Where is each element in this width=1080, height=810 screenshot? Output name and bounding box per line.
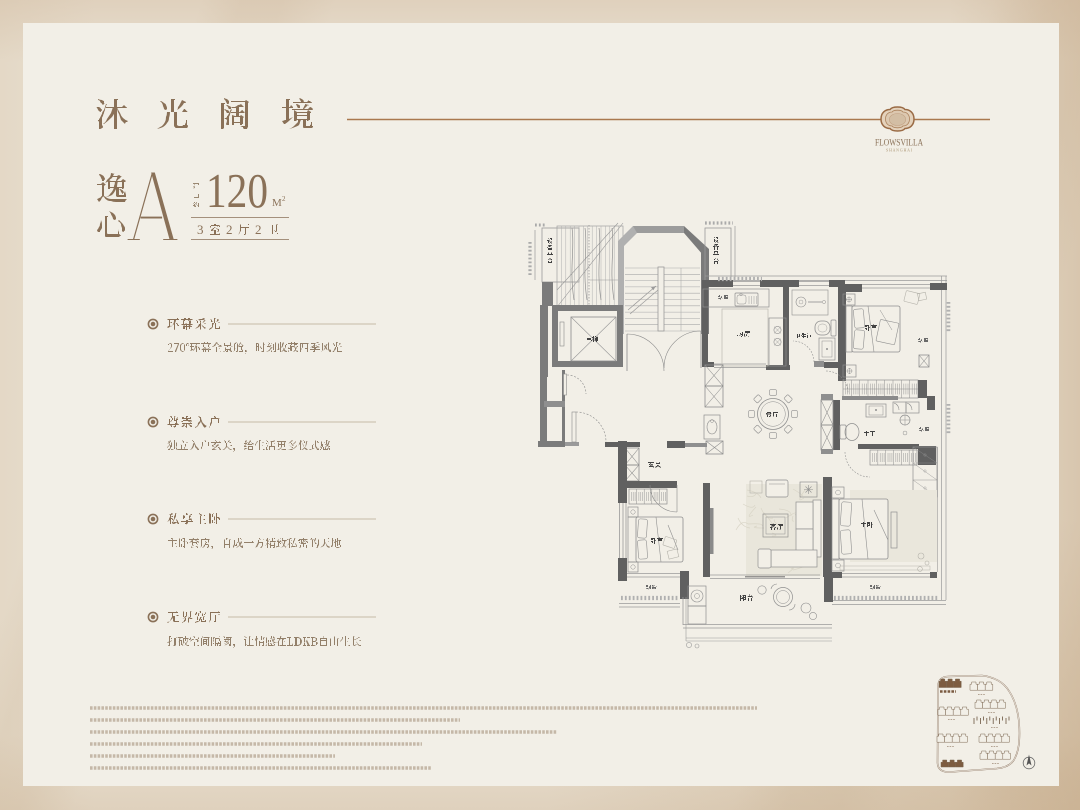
svg-text:S H A N G H A I: S H A N G H A I — [886, 148, 913, 153]
svg-text:120: 120 — [206, 163, 268, 218]
svg-text:2: 2 — [282, 195, 286, 203]
svg-text:3: 3 — [197, 222, 204, 237]
svg-text:2: 2 — [255, 222, 262, 237]
svg-text:2: 2 — [226, 222, 233, 237]
svg-text:M: M — [272, 197, 282, 209]
